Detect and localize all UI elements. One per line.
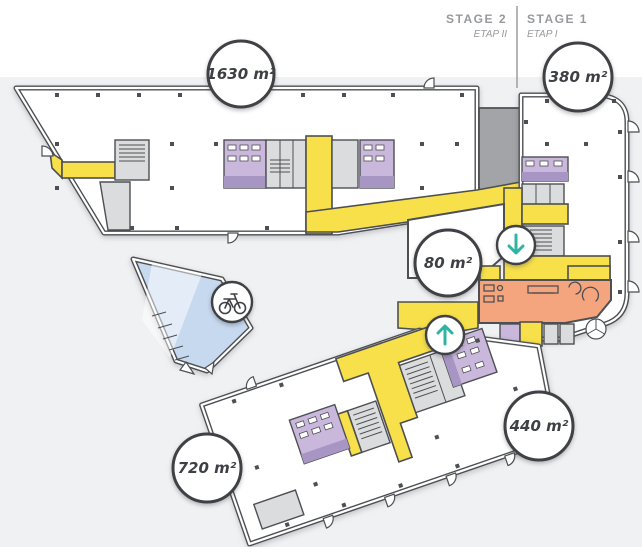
svg-text:720 m²: 720 m² <box>178 459 237 477</box>
area-badge-440: 440 m² <box>505 392 573 460</box>
arrow-down-icon <box>497 226 535 264</box>
floor-plan: STAGE 2 ETAP II STAGE 1 ETAP I <box>0 0 642 547</box>
stage2-sublabel: ETAP II <box>474 29 508 40</box>
svg-text:80 m²: 80 m² <box>424 254 473 272</box>
stage2-label: STAGE 2 <box>446 12 507 26</box>
service-cell <box>332 140 358 188</box>
area-badge-720: 720 m² <box>173 434 241 502</box>
svg-text:1630 m²: 1630 m² <box>206 65 276 83</box>
stage-gap-block <box>479 108 521 191</box>
stair-core <box>115 140 149 180</box>
arrow-up-icon <box>426 316 464 354</box>
wc-room-dark-strip <box>360 176 394 188</box>
corridor-segment <box>568 266 610 281</box>
service-cell <box>544 324 558 344</box>
stage1-sublabel: ETAP I <box>527 29 558 40</box>
service-cell <box>560 324 574 344</box>
area-badge-80: 80 m² <box>415 230 481 296</box>
corridor-segment <box>480 266 500 281</box>
svg-text:380 m²: 380 m² <box>549 68 608 86</box>
wc-fixtures <box>526 161 562 166</box>
area-badge-1630: 1630 m² <box>206 41 276 107</box>
stage1-label: STAGE 1 <box>527 12 588 26</box>
corridor-segment <box>522 204 568 224</box>
wc-room-dark-strip <box>224 176 266 188</box>
revolving-door-icon <box>586 319 606 339</box>
wc-room-dark-strip <box>522 172 568 181</box>
svg-text:440 m²: 440 m² <box>509 417 569 435</box>
corridor-segment <box>62 162 115 178</box>
bicycle-icon <box>212 282 252 322</box>
area-badge-380: 380 m² <box>544 43 612 111</box>
